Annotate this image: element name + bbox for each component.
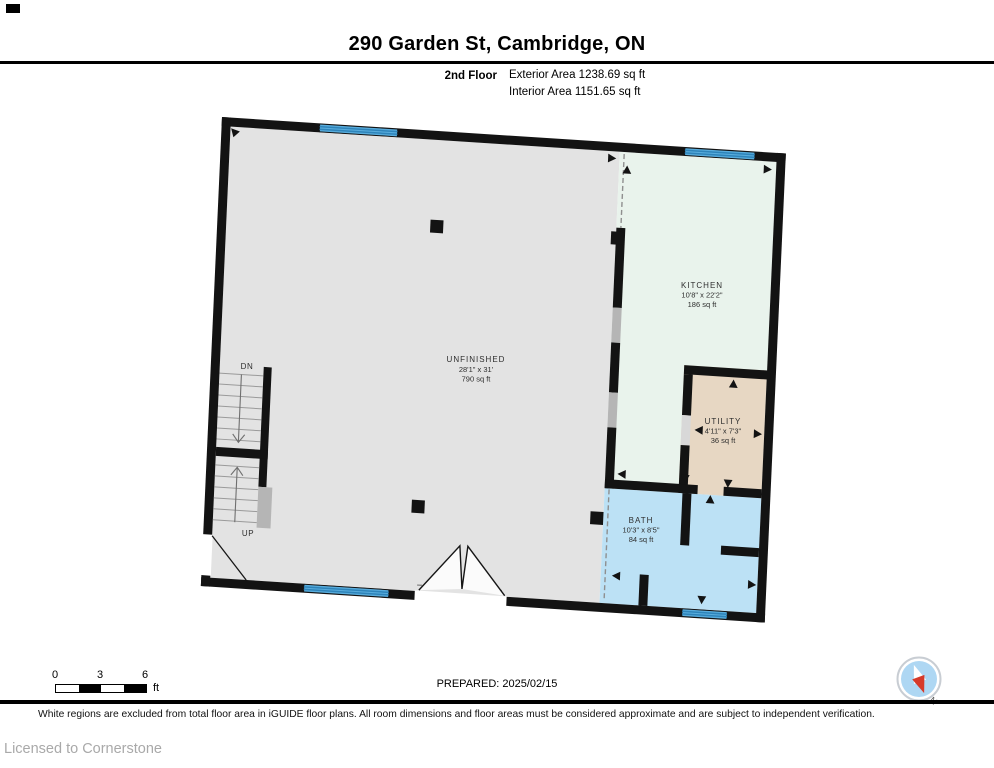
utility-name: UTILITY: [705, 417, 742, 426]
stairs-down-label: DN: [241, 362, 254, 371]
kitchen-name: KITCHEN: [681, 281, 723, 290]
post: [411, 500, 425, 514]
license-text: Licensed to Cornerstone: [4, 741, 162, 757]
stairs-up-label: UP: [242, 529, 254, 538]
half-wall-seg: [611, 307, 622, 343]
post: [430, 220, 444, 234]
prepared-date: PREPARED: 2025/02/15: [0, 678, 994, 690]
unfinished-dims: 28'1" x 31': [459, 365, 494, 374]
bath-dims: 10'3" x 8'5": [623, 526, 660, 535]
room-unfinished-floor: [210, 127, 620, 603]
utility-area: 36 sq ft: [711, 436, 737, 445]
opening-left-door: [201, 534, 213, 576]
kitchen-area: 186 sq ft: [688, 300, 718, 309]
floor-plan-canvas: UNFINISHED 28'1" x 31' 790 sq ft KITCHEN…: [0, 0, 994, 768]
unfinished-name: UNFINISHED: [447, 355, 506, 364]
wall-bath-stub: [638, 574, 648, 606]
post: [611, 231, 625, 245]
utility-dims: 4'11" x 7'3": [705, 427, 742, 436]
disclaimer-text: White regions are excluded from total fl…: [38, 709, 988, 720]
half-wall-seg: [607, 392, 618, 428]
wall-utility-left: [682, 374, 693, 415]
footer-divider: [0, 700, 994, 704]
bath-name: BATH: [629, 516, 654, 525]
bath-area: 84 sq ft: [629, 535, 655, 544]
kitchen-dims: 10'8" x 22'2": [681, 291, 722, 300]
utility-door-gap: [681, 415, 691, 446]
floorplan-page: 290 Garden St, Cambridge, ON 2nd Floor E…: [0, 0, 994, 768]
stair-half-wall: [257, 487, 273, 529]
post: [590, 511, 604, 525]
unfinished-area: 790 sq ft: [462, 375, 492, 384]
